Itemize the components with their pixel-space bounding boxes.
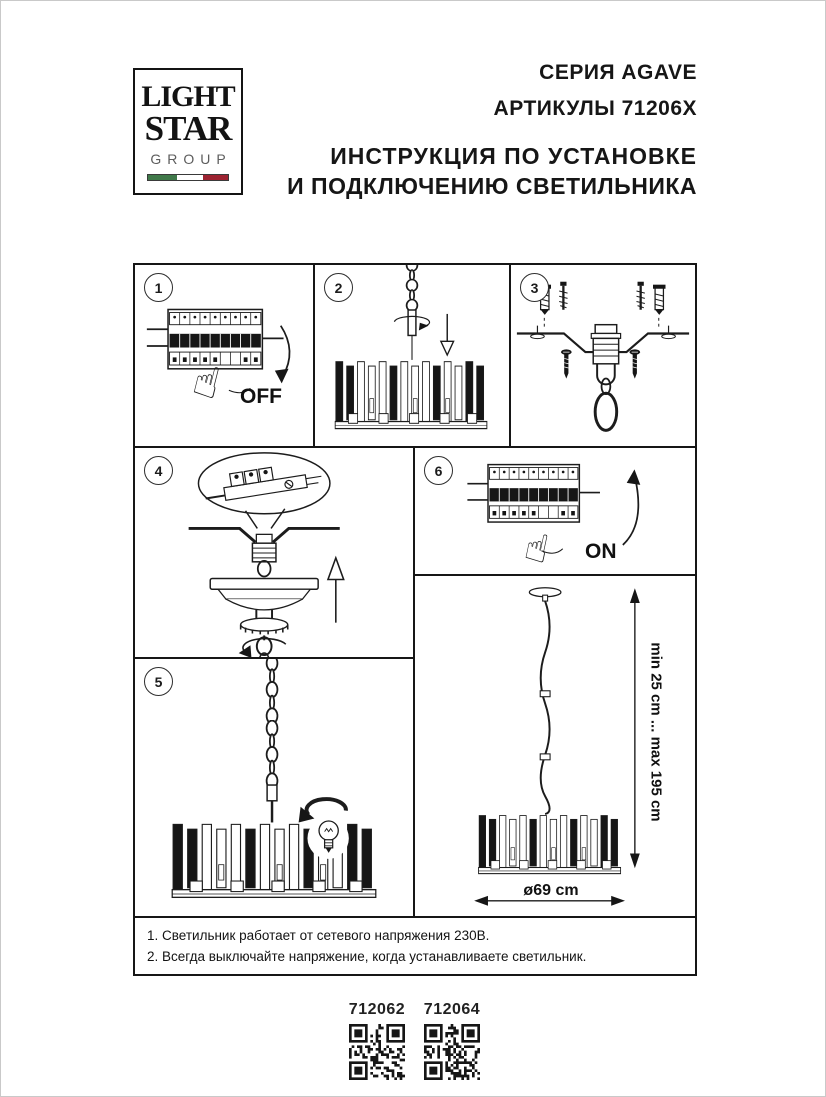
italian-flag-bar xyxy=(147,174,229,181)
dimension-panel: min 25 cm ... max 195 cm ø69 cm xyxy=(413,574,697,918)
mounting-screw-icon xyxy=(629,349,640,378)
up-arrow xyxy=(328,558,344,580)
step-number: 5 xyxy=(144,667,173,696)
lock-nut xyxy=(241,618,288,631)
articles-title: АРТИКУЛЫ 71206X xyxy=(494,97,697,121)
logo-word-group: GROUP xyxy=(135,151,241,167)
article-number: 712062 xyxy=(342,1001,412,1019)
chain-icon xyxy=(267,721,278,789)
bulb-install-diagram xyxy=(135,659,413,916)
screw-icon xyxy=(559,282,567,310)
chandelier-drum xyxy=(478,816,620,874)
step-panel-3: 3 xyxy=(509,263,697,448)
chain-icon xyxy=(267,659,278,724)
mounting-screw-icon xyxy=(561,349,572,378)
step-panel-1: 1 ☝ OFF xyxy=(133,263,315,448)
canopy xyxy=(210,579,318,590)
qr-code xyxy=(349,1024,405,1080)
wall-anchor-icon xyxy=(653,285,666,315)
instruction-title-1: ИНСТРУКЦИЯ ПО УСТАНОВКЕ xyxy=(330,143,697,170)
step-number: 3 xyxy=(520,273,549,302)
lightstar-logo: LIGHT STAR GROUP xyxy=(133,68,243,195)
breaker-on-diagram: ☝ xyxy=(415,448,695,574)
note-line-2: 2. Всегда выключайте напряжение, когда у… xyxy=(147,946,683,967)
off-label: OFF xyxy=(240,385,282,409)
step-panel-5: 5 xyxy=(133,657,415,918)
on-label: ON xyxy=(585,540,617,564)
logo-word-star: STAR xyxy=(135,112,241,146)
height-range-label: min 25 cm ... max 195 cm xyxy=(648,642,665,821)
qr-code xyxy=(424,1024,480,1080)
notes-panel: 1. Светильник работает от сетевого напря… xyxy=(133,916,697,976)
chandelier-drum xyxy=(335,362,487,429)
step-number: 6 xyxy=(424,456,453,485)
instruction-sheet: LIGHT STAR GROUP СЕРИЯ AGAVE АРТИКУЛЫ 71… xyxy=(0,0,826,1097)
logo-word-light: LIGHT xyxy=(135,82,241,112)
step-panel-2: 2 xyxy=(313,263,511,448)
note-line-1: 1. Светильник работает от сетевого напря… xyxy=(147,925,683,946)
hand-icon: ☝ xyxy=(521,524,553,573)
wiring-canopy-diagram xyxy=(135,448,413,657)
instruction-title-2: И ПОДКЛЮЧЕНИЮ СВЕТИЛЬНИКА xyxy=(287,173,697,200)
article-number: 712064 xyxy=(417,1001,487,1019)
step-panel-4: 4 xyxy=(133,446,415,659)
step-number: 2 xyxy=(324,273,353,302)
chain-icon xyxy=(407,265,418,311)
diameter-label: ø69 cm xyxy=(523,882,578,900)
suspension-cable xyxy=(541,601,550,814)
step-number: 1 xyxy=(144,273,173,302)
step-number: 4 xyxy=(144,456,173,485)
series-title: СЕРИЯ AGAVE xyxy=(539,61,697,85)
screw-icon xyxy=(636,282,644,310)
step-panel-6: 6 ☝ ON xyxy=(413,446,697,576)
